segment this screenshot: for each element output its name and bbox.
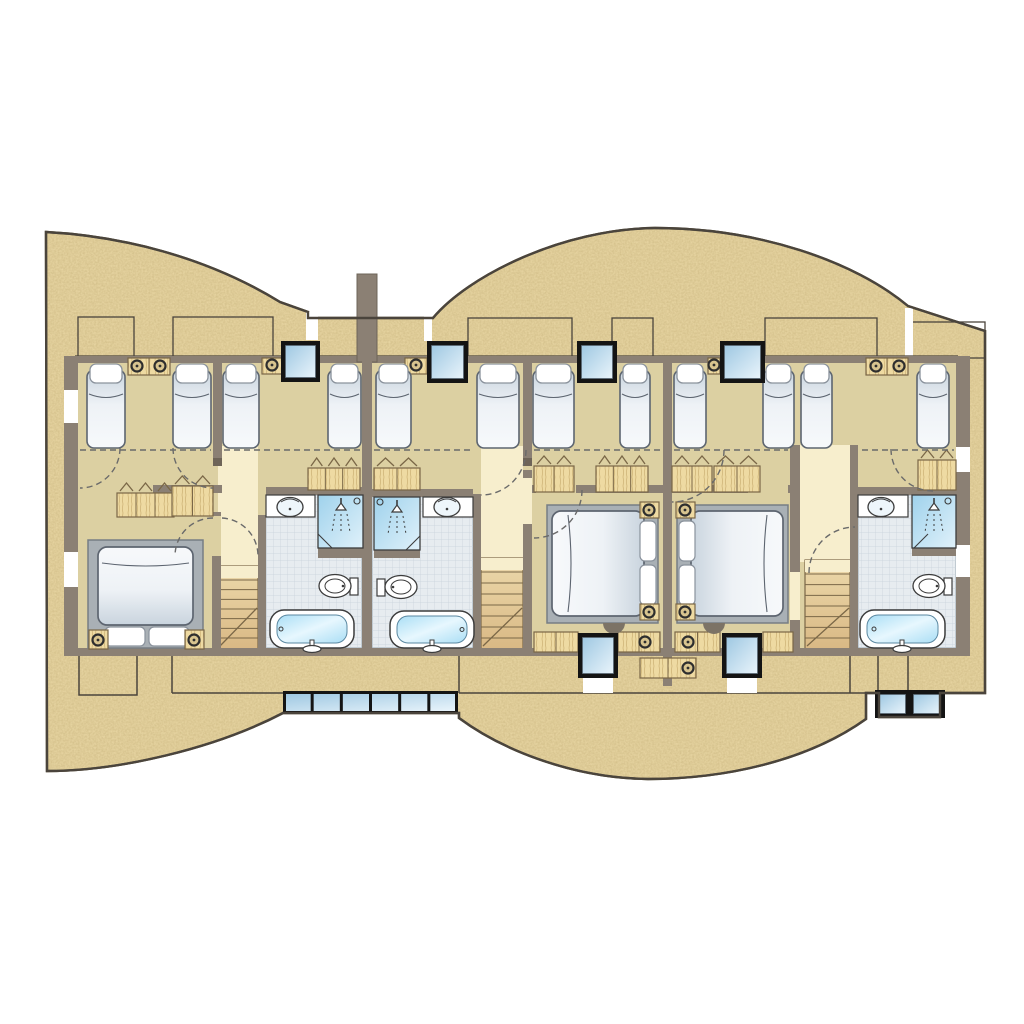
shower-wall-stub [374,550,420,558]
spotlight-dot [713,364,716,367]
spotlight-dot [193,639,196,642]
ribbon-window-mullion [369,693,372,712]
spotlight-dot [687,667,690,670]
single-bed-pillow [623,364,647,383]
window [880,695,906,714]
bathtub-basin [397,616,467,643]
toilet-flush [342,585,345,588]
chalet-floor-plan [0,0,1024,1024]
washbasin-drain [880,508,883,511]
spotlight-dot [684,509,687,512]
single-bed-pillow [536,364,571,383]
washbasin [434,498,460,517]
window [725,346,761,379]
landing-2 [481,446,523,558]
window [286,346,316,378]
spotlight-dot [415,364,418,367]
wall-window-gap [64,552,78,587]
door-opening [790,572,800,620]
floor-plan-page [0,0,1024,1024]
landing-3 [800,445,850,562]
washbasin [868,498,894,517]
facade-gap [583,678,613,693]
wall-window-gap [956,447,970,472]
wall-east [956,356,970,656]
single-bed-pillow [331,364,358,383]
double-bed [98,547,193,625]
wall-window-gap [956,545,970,577]
bath-1-wall [258,515,266,652]
bath-3-wall [850,445,858,652]
facade-gap [727,678,757,693]
window [582,346,613,379]
bathtub-faucet [303,646,321,653]
single-bed-pillow [90,364,122,383]
ribbon-window-mullion [427,693,430,712]
spotlight-dot [648,611,651,614]
single-bed-pillow [766,364,791,383]
single-bed-pillow [226,364,256,383]
single-bed-pillow [379,364,408,383]
wall-south [75,648,958,656]
staircase-3-landing [805,560,850,572]
bathtub-basin [277,615,347,643]
spotlight-dot [648,509,651,512]
wall-cap [213,458,222,466]
wardrobe [117,493,174,517]
toilet-cistern [377,579,385,596]
window [914,695,941,714]
washbasin-drain [446,508,449,511]
spotlight-dot [684,611,687,614]
room-divider [523,360,532,464]
wardrobe [308,468,360,490]
pillow [105,627,145,646]
shower-wall-stub [318,548,363,558]
landing-3-wall [790,445,800,652]
spotlight-dot [97,639,100,642]
single-bed-pillow [920,364,946,383]
room-divider [213,360,222,464]
spotlight-dot [271,364,274,367]
wardrobe [596,466,648,492]
washbasin-drain [289,508,292,511]
spotlight-dot [875,365,878,368]
window [583,638,614,674]
bathtub-faucet [423,646,441,653]
pillow [640,565,656,605]
spotlight-dot [136,365,139,368]
staircase-1-landing [218,566,258,578]
landing-1 [218,446,258,566]
staircase-1 [218,566,258,650]
double-bed [691,511,783,616]
pillow [149,627,189,646]
washbasin [277,498,303,517]
bathtub-basin [867,615,938,643]
pillow [640,521,656,561]
sideboard [763,632,793,652]
ribbon-window-mullion [311,693,314,712]
door-opening [523,478,532,524]
wall-north [75,356,958,363]
single-bed-pillow [176,364,208,383]
shower-wall-stub [912,548,956,556]
single-bed-pillow [804,364,829,383]
staircase-2-landing [481,558,523,570]
single-bed-pillow [480,364,516,383]
window [727,638,758,674]
ribbon-window-mullion [398,693,401,712]
spotlight-dot [898,365,901,368]
wall-window-gap [64,390,78,423]
spotlight-dot [644,641,647,644]
facade-gap [905,308,913,359]
facade-gap [424,312,432,341]
toilet [319,575,351,598]
toilet-flush [936,585,939,588]
spotlight-dot [687,641,690,644]
ribbon-window-mullion [340,693,343,712]
window [432,346,464,379]
pillow [679,565,695,605]
single-bed-pillow [677,364,703,383]
bathtub-faucet [893,646,911,653]
toilet-flush [392,586,395,589]
spotlight-dot [159,365,162,368]
party-wall-2 [663,356,672,656]
door-opening [212,516,221,556]
toilet [385,576,417,599]
toilet [913,575,945,598]
pillow [679,521,695,561]
